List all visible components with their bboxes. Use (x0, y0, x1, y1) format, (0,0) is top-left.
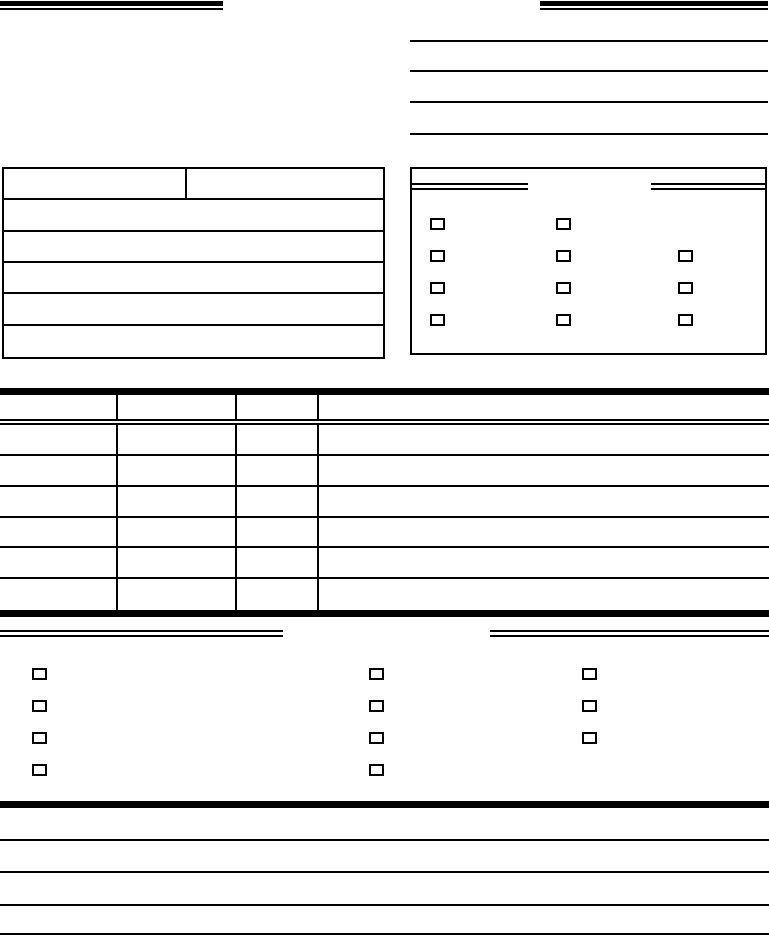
checkbox[interactable] (556, 282, 571, 294)
info-table-row[interactable] (4, 200, 383, 231)
checkbox[interactable] (556, 314, 571, 326)
checkbox[interactable] (582, 700, 597, 712)
info-table-row[interactable] (4, 232, 383, 263)
items-table-top-bar (0, 388, 769, 395)
notes-line[interactable] (0, 839, 769, 841)
notes-line[interactable] (0, 933, 769, 935)
checkbox[interactable] (32, 700, 47, 712)
items-table-cell[interactable] (319, 487, 769, 516)
checkbox[interactable] (556, 218, 571, 230)
checkbox[interactable] (678, 250, 693, 262)
items-table-cell[interactable] (319, 579, 769, 610)
items-table-cell[interactable] (118, 487, 237, 516)
items-table-cell[interactable] (237, 579, 319, 610)
checkbox[interactable] (369, 732, 384, 744)
items-table-header-row (0, 395, 769, 425)
checkbox[interactable] (678, 282, 693, 294)
info-table (2, 167, 385, 359)
items-table-cell[interactable] (0, 548, 118, 577)
checkbox[interactable] (369, 700, 384, 712)
checkbox[interactable] (369, 668, 384, 680)
blank-form-page (0, 0, 769, 937)
items-table-cell[interactable] (0, 518, 118, 547)
panel-checkbox-column-2 (556, 218, 571, 326)
items-table-row (0, 548, 769, 579)
checkbox[interactable] (556, 250, 571, 262)
checkbox[interactable] (582, 732, 597, 744)
info-table-row (4, 169, 383, 200)
options-left-heading-rule (0, 630, 283, 637)
items-table-cell[interactable] (118, 579, 237, 610)
items-table-row (0, 487, 769, 518)
write-in-line[interactable] (410, 101, 768, 103)
checkbox-panel (410, 167, 767, 355)
notes-ruled-area (0, 808, 769, 937)
items-table-cell[interactable] (319, 425, 769, 454)
items-table-cell[interactable] (0, 579, 118, 610)
checkbox[interactable] (582, 668, 597, 680)
items-table-cell[interactable] (0, 487, 118, 516)
checkbox[interactable] (430, 218, 445, 230)
options-checkbox-column-2 (369, 668, 384, 776)
items-table-cell[interactable] (118, 456, 237, 485)
info-table-row[interactable] (4, 263, 383, 294)
notes-line[interactable] (0, 871, 769, 873)
checkbox[interactable] (430, 282, 445, 294)
top-left-title-rule (0, 1, 223, 10)
items-table-row (0, 579, 769, 610)
items-table-row (0, 456, 769, 487)
checkbox[interactable] (430, 314, 445, 326)
checkbox[interactable] (678, 314, 693, 326)
items-table-cell[interactable] (0, 425, 118, 454)
items-table-cell[interactable] (237, 548, 319, 577)
options-checkbox-column-1 (32, 668, 47, 776)
items-table-cell[interactable] (118, 548, 237, 577)
checkbox[interactable] (369, 764, 384, 776)
info-table-row[interactable] (4, 326, 383, 357)
write-in-line[interactable] (410, 40, 768, 42)
notes-section-divider-bar (0, 801, 769, 808)
items-table-cell[interactable] (319, 518, 769, 547)
info-table-cell[interactable] (4, 169, 187, 198)
write-in-line[interactable] (410, 133, 768, 135)
panel-right-heading-rule (651, 183, 765, 190)
checkbox[interactable] (32, 668, 47, 680)
items-table-cell[interactable] (237, 456, 319, 485)
info-table-row[interactable] (4, 294, 383, 325)
items-table-header-cell (0, 395, 118, 419)
items-table-body (0, 425, 769, 610)
items-table-cell[interactable] (118, 518, 237, 547)
header-write-in-fields (410, 0, 768, 150)
items-table-cell[interactable] (319, 456, 769, 485)
items-table-header-cell (237, 395, 319, 419)
checkbox[interactable] (32, 732, 47, 744)
panel-left-heading-rule (412, 183, 528, 190)
options-right-heading-rule (490, 630, 769, 637)
items-table-cell[interactable] (237, 487, 319, 516)
items-table-cell[interactable] (118, 425, 237, 454)
checkbox[interactable] (32, 764, 47, 776)
items-table-header-cell (118, 395, 237, 419)
checkbox[interactable] (430, 250, 445, 262)
notes-line[interactable] (0, 904, 769, 906)
items-table-row (0, 518, 769, 549)
items-table-cell[interactable] (237, 425, 319, 454)
panel-checkbox-column-1 (430, 218, 445, 326)
items-table-row (0, 425, 769, 456)
items-table-cell[interactable] (0, 456, 118, 485)
items-table-bottom-bar (0, 610, 769, 617)
items-table-cell[interactable] (319, 548, 769, 577)
options-checkbox-column-3 (582, 668, 597, 744)
items-table-cell[interactable] (237, 518, 319, 547)
panel-checkbox-column-3 (678, 250, 693, 326)
write-in-line[interactable] (410, 70, 768, 72)
info-table-cell[interactable] (187, 169, 383, 198)
items-table-header-cell (319, 395, 769, 419)
